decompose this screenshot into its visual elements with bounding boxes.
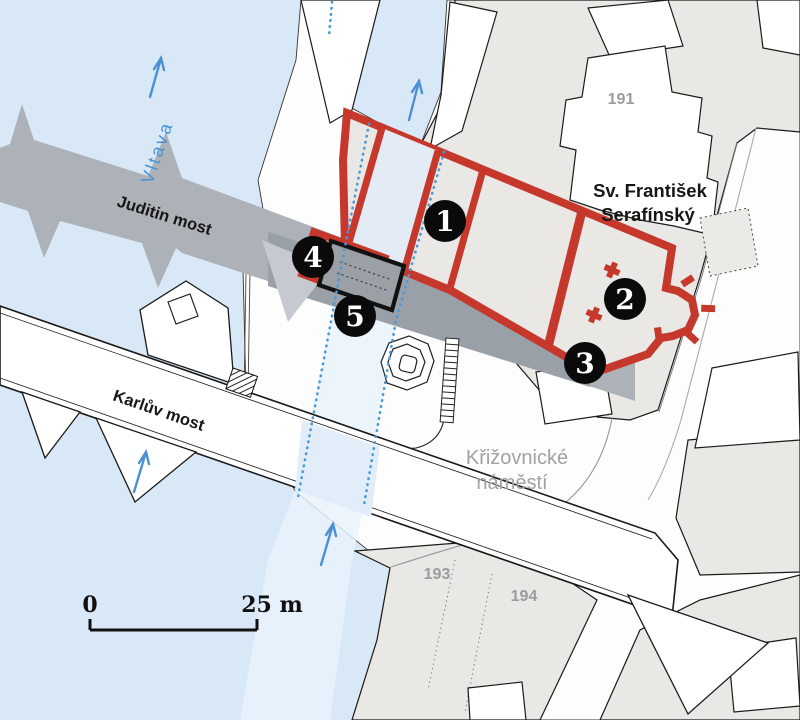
svg-text:2: 2 [615, 283, 634, 316]
church-annex-dotted [700, 208, 758, 276]
church-label-line1: Sv. František [593, 180, 708, 201]
svg-text:3: 3 [575, 347, 594, 380]
statue-base-octagon [381, 336, 434, 390]
scale-end-label: 25 m [241, 592, 303, 618]
marker-4: 4 [292, 236, 334, 278]
marker-2: 2 [604, 278, 646, 320]
map-canvas: Vltava Juditin most Karlův most Sv. Fran… [0, 0, 800, 720]
svg-text:1: 1 [435, 205, 454, 238]
scale-zero-label: 0 [82, 592, 97, 618]
marker-5: 5 [334, 295, 376, 337]
church-label-line2: Serafínský [601, 204, 695, 225]
building-south [468, 682, 526, 720]
svg-text:4: 4 [303, 241, 322, 274]
parcel-number-194: 194 [511, 588, 538, 605]
parcel-block-east [676, 430, 800, 575]
svg-text:5: 5 [345, 300, 364, 333]
parcel-number-193: 193 [424, 566, 451, 583]
building-northeast-corner [757, 0, 800, 55]
square-label-line2: náměstí [476, 472, 548, 494]
marker-3: 3 [564, 342, 606, 384]
marker-1: 1 [424, 200, 466, 242]
site-plan-map: Vltava Juditin most Karlův most Sv. Fran… [0, 0, 800, 720]
square-label-line1: Křižovnické [466, 447, 568, 469]
parcel-number-191: 191 [608, 91, 635, 108]
